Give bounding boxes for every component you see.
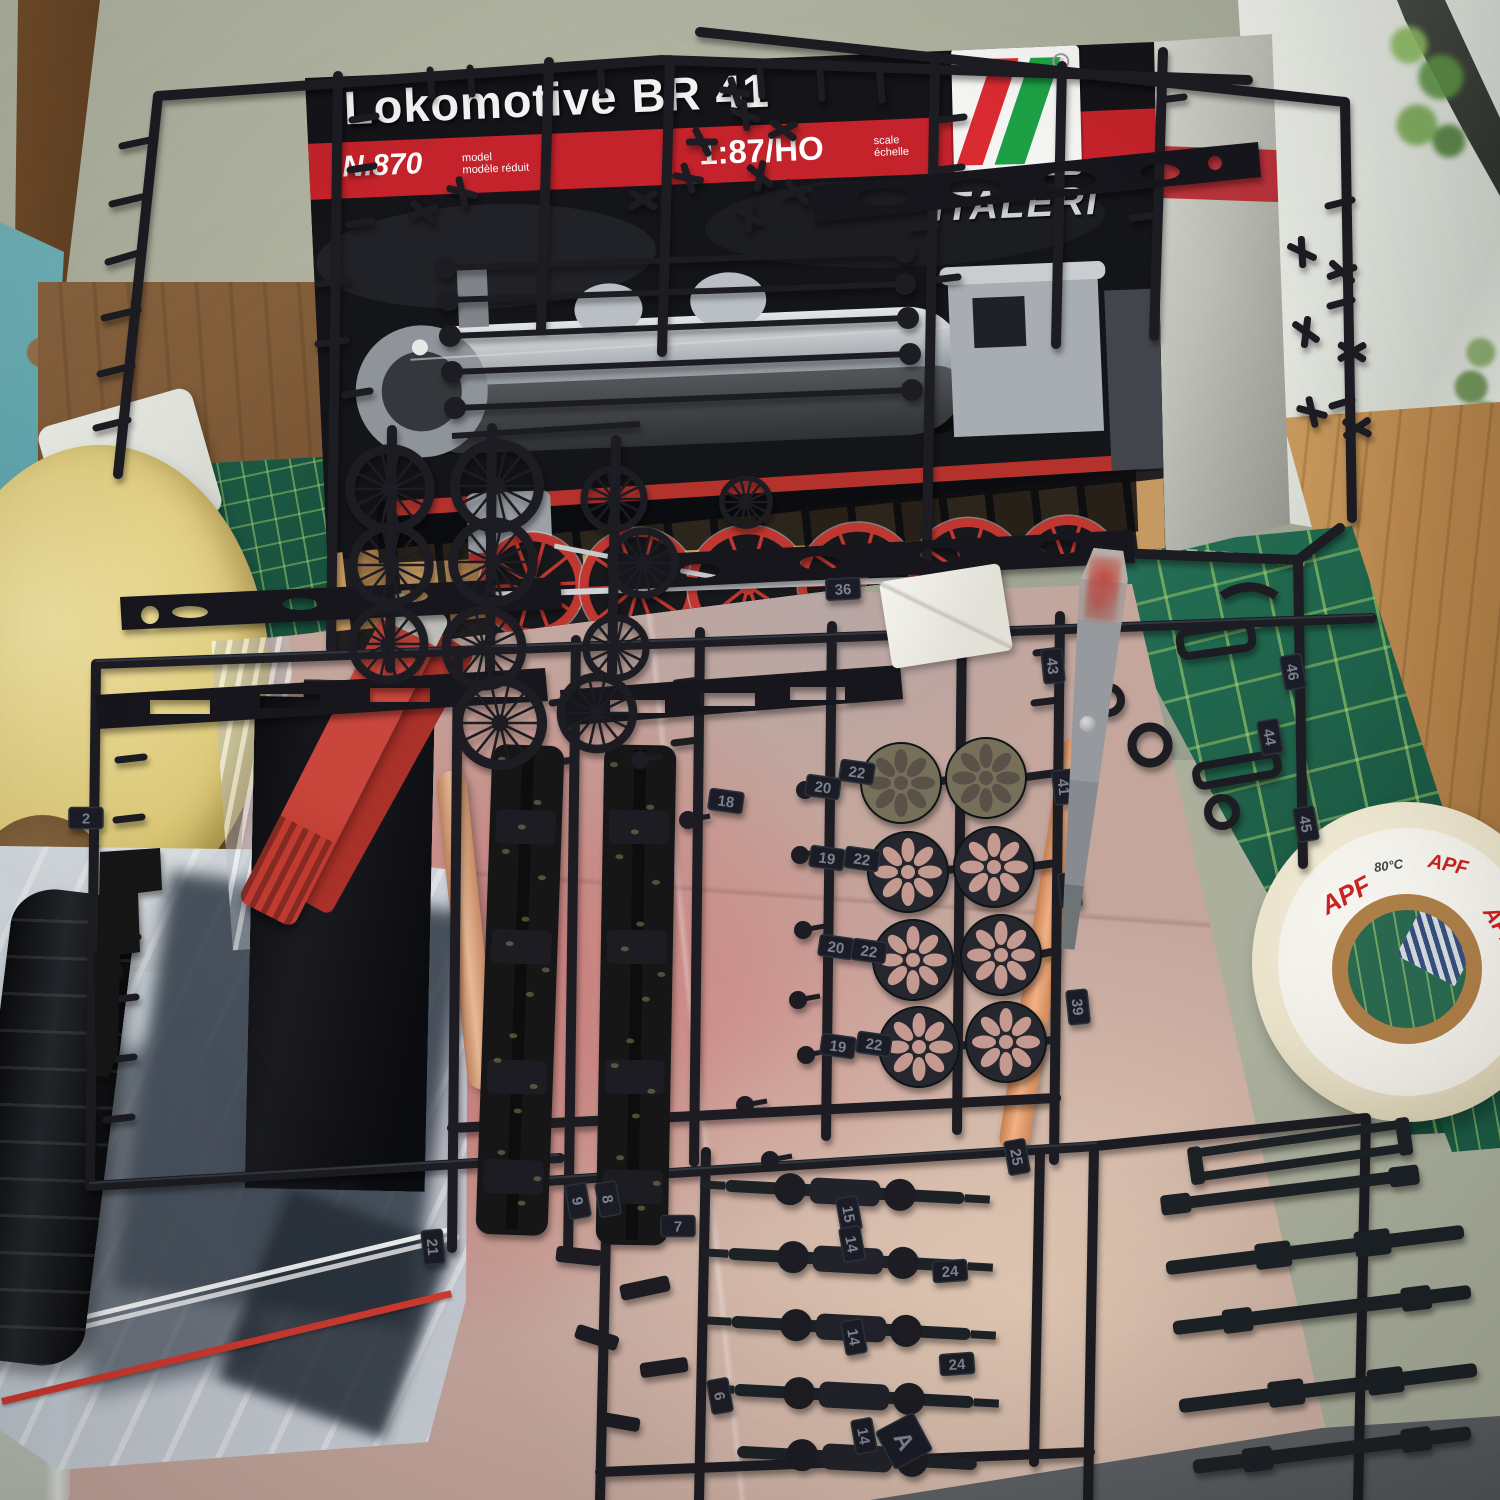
small-sprue-part [717,74,754,111]
paint-smudge [1084,555,1123,622]
small-sprue-part [725,95,766,136]
small-sprue-part [727,194,770,237]
counterweight-disc [868,832,948,912]
sprue-part-tag: 21 [421,1229,445,1265]
workbench-photo: Lokomotive BR 41 N.870 model modèle rédu… [0,0,1500,1500]
sprue-part-tag: 20 [818,934,855,960]
small-sprue-part [777,173,816,212]
svg-text:24: 24 [948,1356,966,1374]
svg-text:2: 2 [82,811,90,828]
sprue-part-tag: 43 [1041,648,1065,684]
counterweight-disc [946,738,1026,818]
sprue-part-tag: 25 [1004,1138,1031,1175]
sprue-runners [90,32,1372,1500]
small-sprue-part [403,192,444,233]
svg-text:46: 46 [1282,662,1302,681]
counterweight-disc [954,827,1034,907]
svg-text:15: 15 [838,1204,858,1223]
small-sprue-part [738,154,783,199]
small-sprue-part [1284,310,1328,354]
svg-text:22: 22 [859,942,878,961]
svg-text:19: 19 [817,849,836,868]
small-bracket-parts [555,1246,689,1433]
small-sprue-part [1292,393,1331,432]
svg-text:22: 22 [864,1035,883,1054]
small-sprue-part [1335,406,1379,450]
small-sprue-part [442,173,481,212]
sprue-part-tag: 18 [708,788,745,814]
svg-text:7: 7 [674,1219,682,1236]
small-sprue-part [686,126,718,158]
sprue-part-tag: 44 [1257,718,1284,755]
sprue-wheel [722,478,770,526]
sprue-part-tag: 19 [809,845,846,871]
svg-text:21: 21 [423,1238,441,1256]
sprue-part-tag: 6 [707,1377,734,1414]
sprue-part-tag: 36 [825,578,860,601]
sprue-part-tag: 22 [856,1031,893,1057]
rod-parts [1160,1117,1479,1479]
small-sprue-part [670,160,707,197]
small-sprue-part [1281,231,1323,273]
svg-text:45: 45 [1295,814,1315,833]
folded-tissue [879,563,1013,669]
sprue-parts-layer: 3618202219222022192241423943464445251514… [0,0,1500,1500]
sprue-part-tag: 45 [1293,805,1320,842]
svg-text:24: 24 [941,1263,959,1281]
sprue-part-tag: 22 [839,759,876,785]
svg-text:43: 43 [1043,657,1062,675]
flat-bracket-part [94,848,162,1078]
svg-text:22: 22 [852,850,871,869]
sprue-part-tag: 39 [1066,989,1090,1025]
svg-text:39: 39 [1068,998,1087,1016]
small-sprue-part [621,178,664,221]
svg-text:22: 22 [847,763,866,782]
sprue-part-tag: 19 [820,1033,857,1059]
svg-text:18: 18 [716,792,735,811]
sprue-part-tag: 24 [939,1352,974,1375]
valve-gear-assembly [596,744,677,1245]
small-sprue-part [762,109,804,151]
sprue-part-tag: 24 [932,1259,967,1282]
connecting-rods [437,244,920,436]
svg-text:19: 19 [828,1037,847,1056]
svg-text:20: 20 [813,778,832,797]
svg-text:25: 25 [1006,1147,1026,1166]
sprue-part-tag: 2 [69,808,103,829]
svg-text:20: 20 [826,938,845,957]
sprue-part-tag: 22 [844,846,881,872]
sprue-wheel [455,444,539,528]
small-sprue-part [1322,252,1363,293]
sprue-part-tag: 22 [851,938,888,964]
counterweight-disc [966,1002,1046,1082]
screw-icon [1079,715,1097,733]
sprue-part-tag: 20 [805,774,842,800]
sprue-part-tag: 7 [661,1216,695,1237]
svg-text:36: 36 [834,581,852,599]
ball-pin-part [789,991,820,1009]
counterweight-disc [961,915,1041,995]
